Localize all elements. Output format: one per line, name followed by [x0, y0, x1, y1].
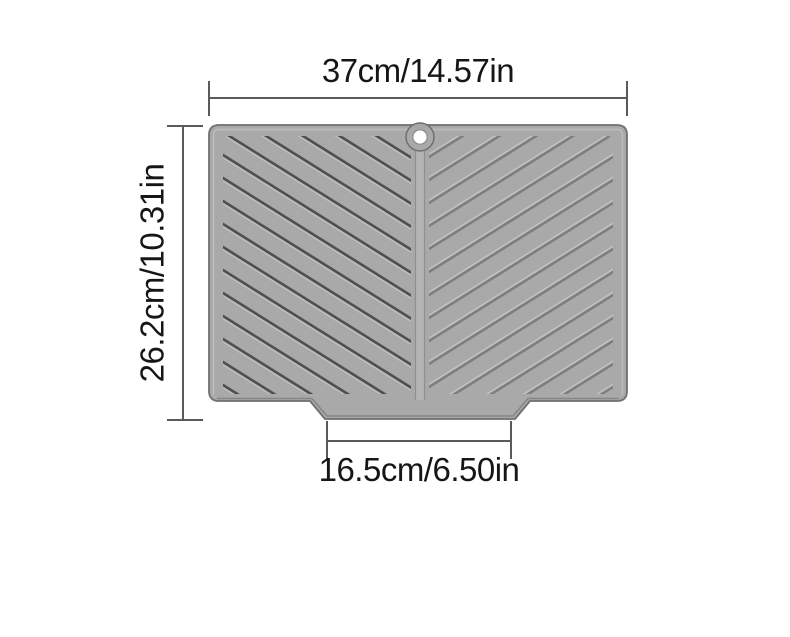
spout-width-dimension-label: 16.5cm/6.50in: [319, 453, 520, 486]
center-ridge: [416, 150, 425, 400]
drain-mat-illustration: [196, 110, 640, 428]
hang-hole-icon: [406, 123, 434, 151]
height-dimension-line: [182, 126, 184, 421]
width-dimension-label: 37cm/14.57in: [322, 54, 514, 87]
height-dimension-label: 26.2cm/10.31in: [136, 164, 169, 383]
spout-dimension-line: [327, 440, 511, 442]
width-dimension-line: [209, 97, 627, 99]
product-dimension-image: 37cm/14.57in 26.2cm/10.31in 16.5cm/6.50i…: [0, 0, 790, 637]
